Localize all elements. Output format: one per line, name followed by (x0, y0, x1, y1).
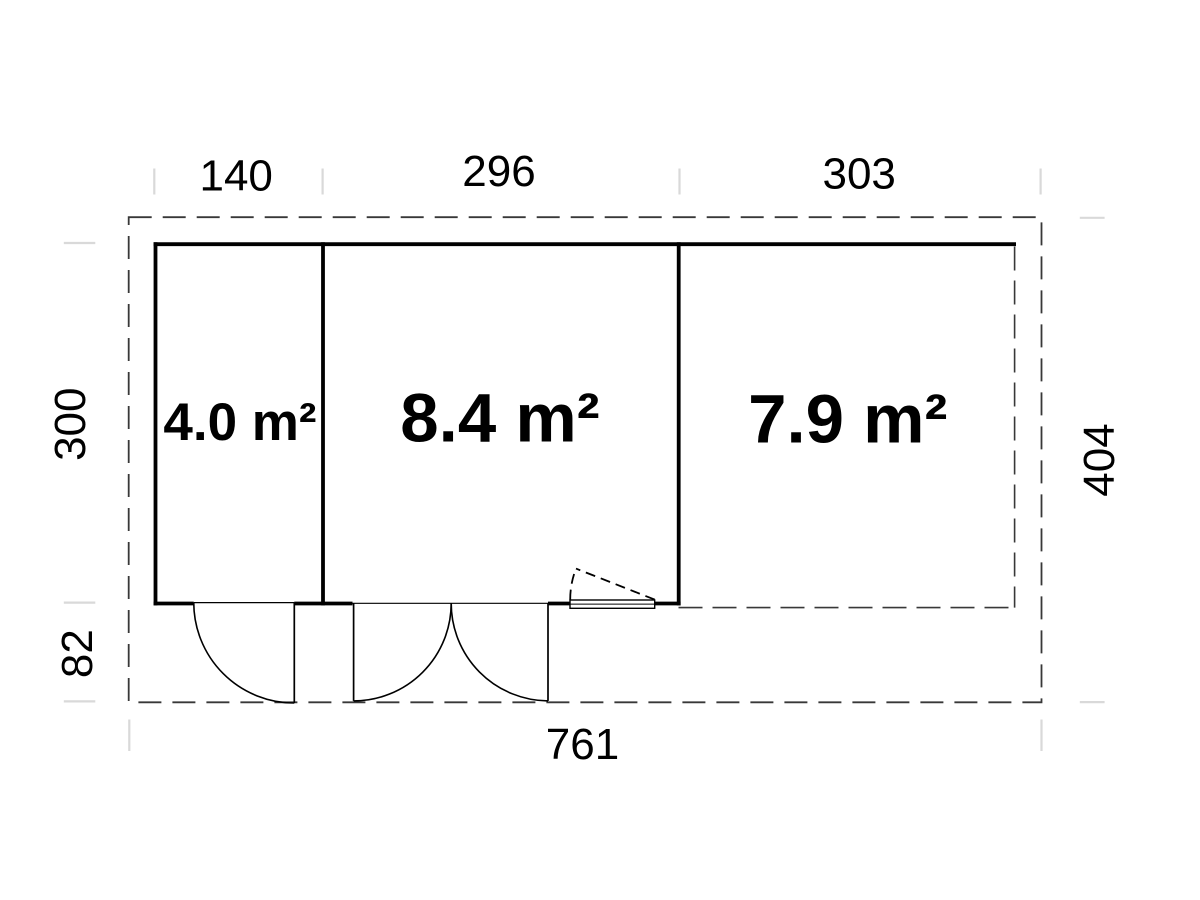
svg-text:140: 140 (199, 152, 272, 201)
svg-text:761: 761 (546, 720, 619, 769)
svg-text:8.4 m²: 8.4 m² (400, 380, 599, 457)
svg-text:4.0 m²: 4.0 m² (163, 393, 316, 452)
svg-text:82: 82 (53, 629, 102, 678)
svg-text:303: 303 (822, 150, 895, 199)
svg-text:296: 296 (462, 147, 535, 196)
svg-text:300: 300 (46, 387, 95, 460)
svg-text:404: 404 (1075, 423, 1124, 496)
svg-text:7.9 m²: 7.9 m² (748, 381, 947, 458)
